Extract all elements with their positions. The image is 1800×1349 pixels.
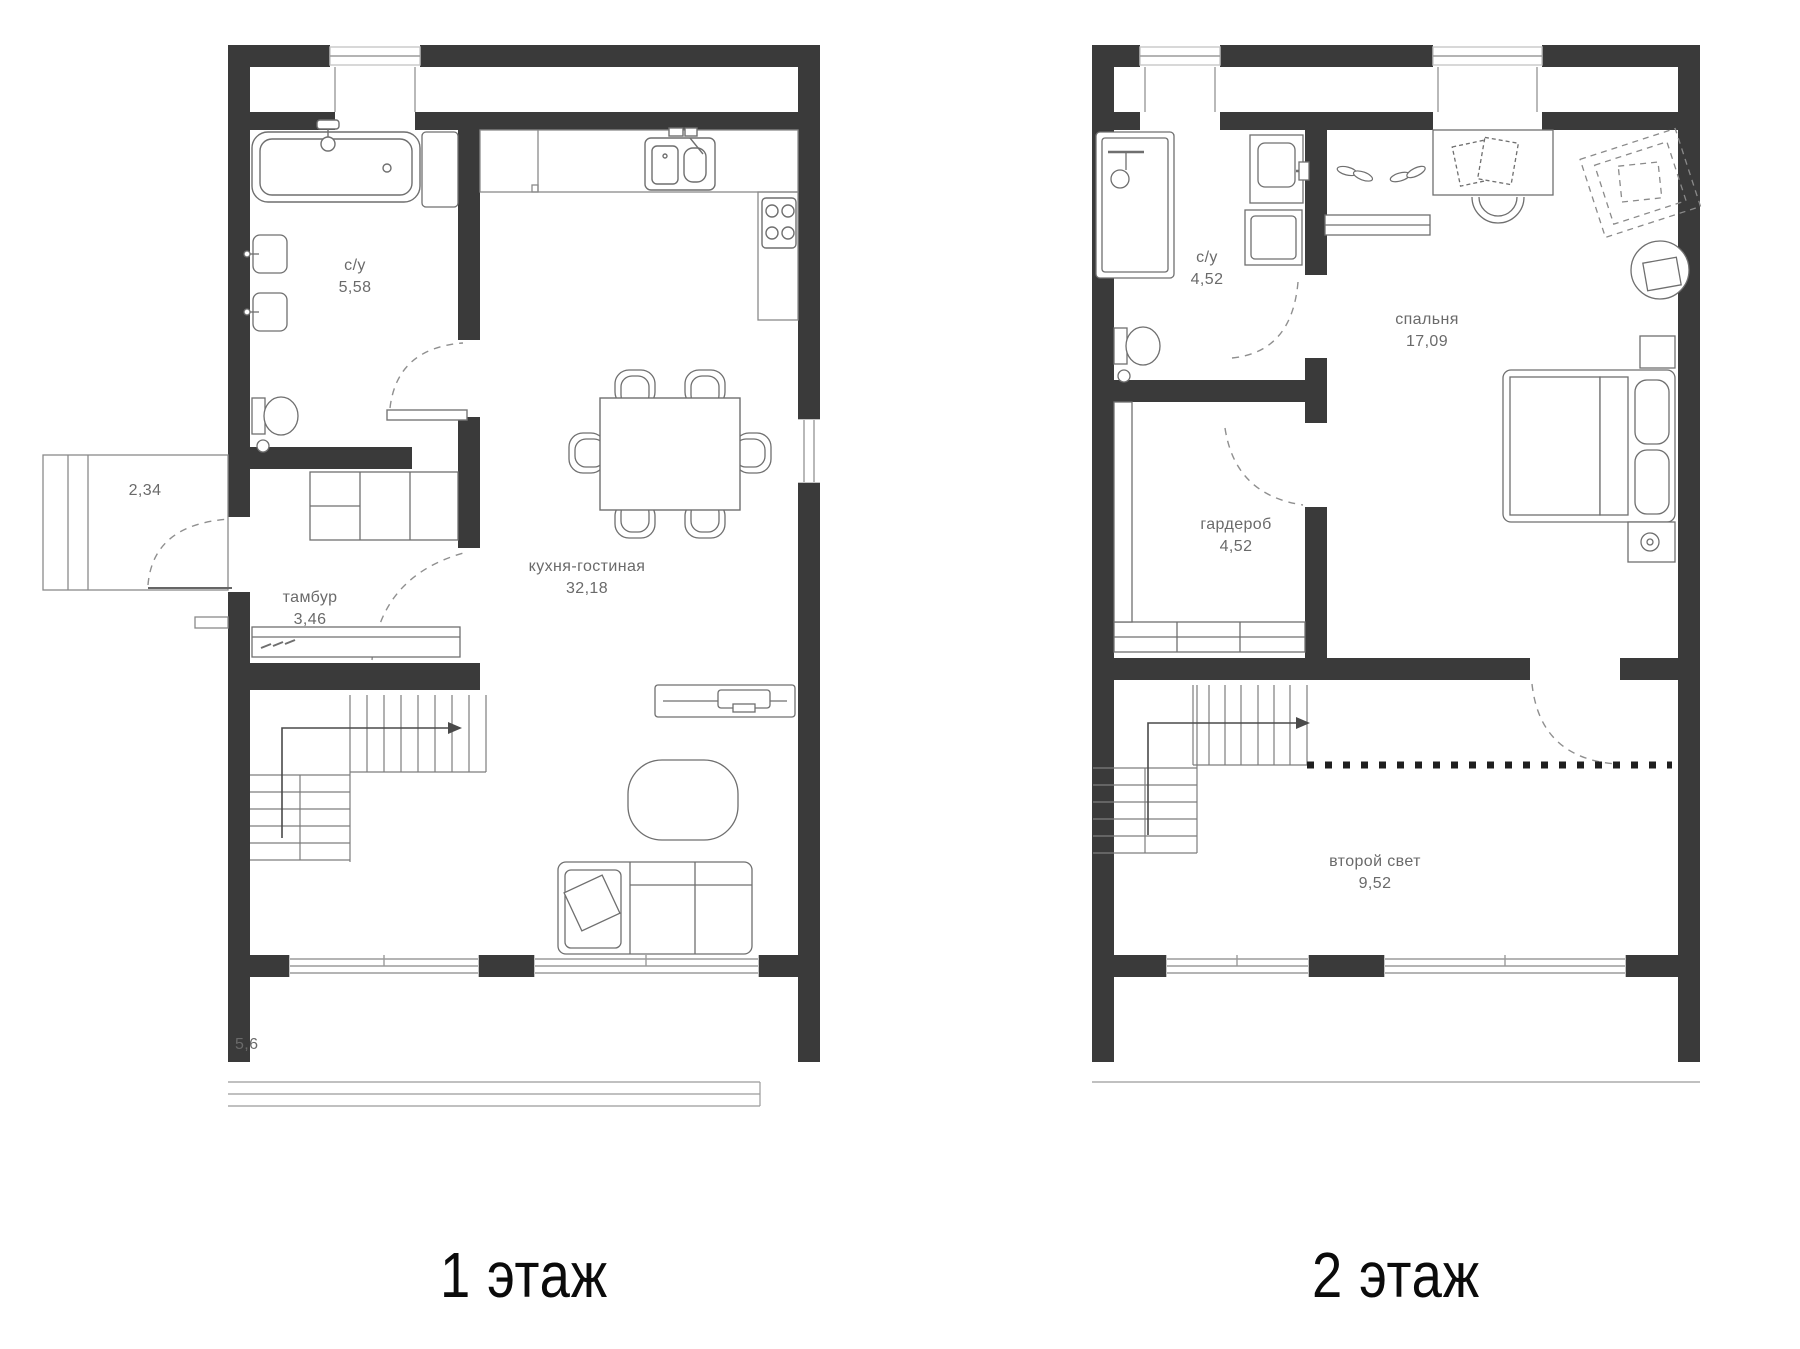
room-label-bathroom2: с/у 4,52 bbox=[1147, 247, 1267, 291]
vestibule-closet bbox=[310, 472, 458, 540]
bathtub bbox=[252, 120, 420, 202]
shoe-bench bbox=[252, 627, 460, 657]
floorplan-canvas: с/у 5,58 тамбур 3,46 кухня-гостиная 32,1… bbox=[0, 0, 1800, 1349]
desk bbox=[1433, 130, 1553, 223]
toilet bbox=[252, 397, 298, 452]
room-label-kitchen-living: кухня-гостиная 32,18 bbox=[497, 556, 677, 600]
terrace-area-label: 5,6 bbox=[235, 1036, 295, 1054]
floor2-caption: 2 этаж bbox=[1269, 1240, 1524, 1310]
floor2-plan: с/у 4,52 гардероб 4,52 спальня 17,09 вто… bbox=[1060, 40, 1760, 1120]
floor2-drawing bbox=[1060, 40, 1760, 1120]
floor1-plan: с/у 5,58 тамбур 3,46 кухня-гостиная 32,1… bbox=[35, 40, 845, 1120]
porch bbox=[43, 455, 228, 628]
coffee-table bbox=[628, 760, 738, 840]
terrace-deck bbox=[228, 1082, 760, 1106]
floor1-drawing bbox=[35, 40, 845, 1120]
porch-area-label: 2,34 bbox=[105, 482, 185, 500]
bathroom-cabinet bbox=[422, 132, 458, 207]
slippers bbox=[1336, 164, 1426, 184]
room-label-vestibule: тамбур 3,46 bbox=[250, 587, 370, 631]
room-label-wardrobe: гардероб 4,52 bbox=[1156, 514, 1316, 558]
wall-sink bbox=[1250, 135, 1309, 203]
staircase bbox=[250, 695, 486, 862]
sofa bbox=[558, 862, 752, 954]
room-label-second-light: второй свет 9,52 bbox=[1285, 851, 1465, 895]
bedroom-bench bbox=[1325, 215, 1430, 235]
stair-direction-arrow-floor2 bbox=[1148, 717, 1310, 835]
tv-stand bbox=[655, 685, 795, 717]
dining-table bbox=[600, 398, 740, 510]
kitchen-sink bbox=[645, 128, 715, 190]
staircase-floor2 bbox=[1093, 685, 1307, 853]
double-sinks bbox=[244, 235, 287, 331]
room-label-bedroom: спальня 17,09 bbox=[1347, 309, 1507, 353]
room-label-bathroom: с/у 5,58 bbox=[295, 255, 415, 299]
bed bbox=[1503, 336, 1675, 562]
stove bbox=[762, 198, 796, 248]
kitchen-counter bbox=[480, 130, 798, 320]
toilet-floor2 bbox=[1114, 327, 1160, 382]
floor1-caption: 1 этаж bbox=[397, 1240, 652, 1310]
round-chair bbox=[1631, 241, 1689, 299]
